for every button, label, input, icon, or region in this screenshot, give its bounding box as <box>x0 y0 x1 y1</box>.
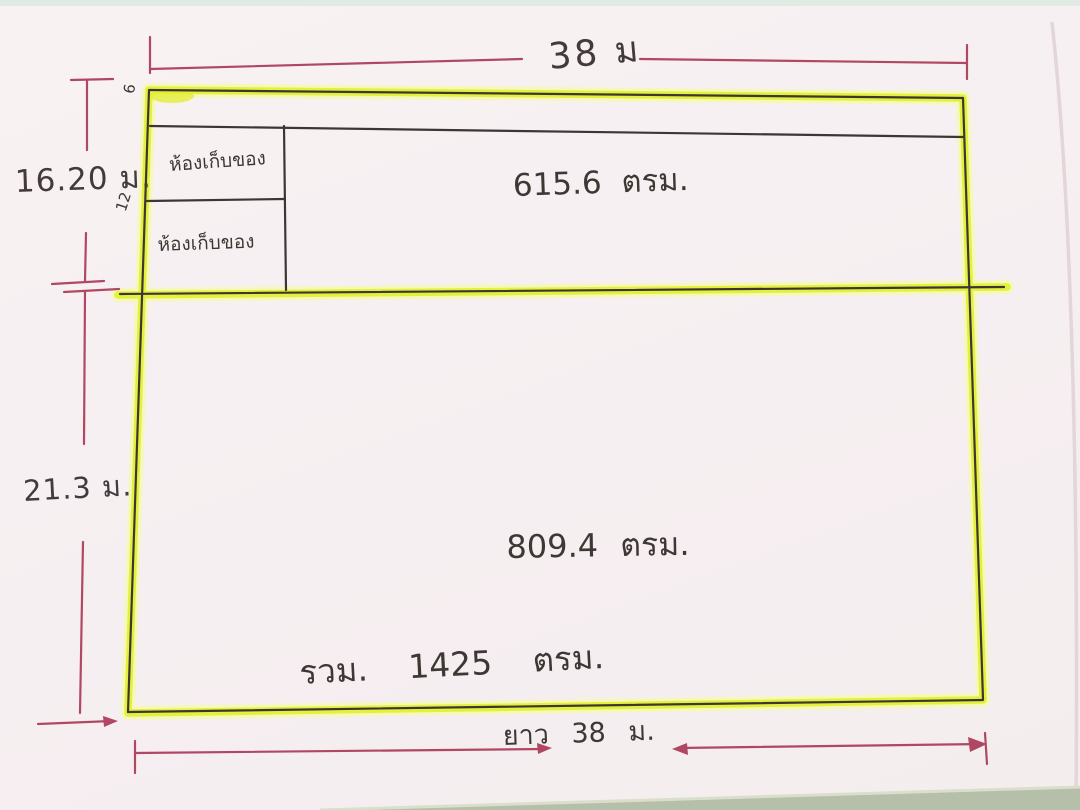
inner-strip-top-line <box>150 126 963 137</box>
paper-right-edge <box>1052 22 1077 810</box>
lower-area-value: 809.4 ตรม. <box>506 519 690 573</box>
left-dim-break-mark <box>52 281 104 284</box>
table-top-strip <box>0 0 1080 6</box>
rooms-horizontal-divider <box>147 199 285 201</box>
bottom-dim-right-tick <box>985 733 987 764</box>
left-dim-top-bar <box>71 79 113 80</box>
photo-of-hand-drawn-plot-sketch: 38 ม 16.20 ม. 21.3 ม. ห้องเก็บของ ห้องเก… <box>0 0 1080 810</box>
sketch-drawing <box>0 0 1080 810</box>
bottom-length-label: ยาว 38 ม. <box>502 709 655 757</box>
storage-room-2-label: ห้องเก็บของ <box>157 227 255 260</box>
left-dim-break-mark <box>64 289 119 292</box>
top-width-label: 38 ม <box>546 20 644 85</box>
left-lower-height-label: 21.3 ม. <box>22 462 133 514</box>
left-dim-bottom-bar <box>38 721 112 724</box>
upper-area-value: 615.6 ตรม. <box>512 154 689 210</box>
rooms-right-divider <box>284 126 286 290</box>
